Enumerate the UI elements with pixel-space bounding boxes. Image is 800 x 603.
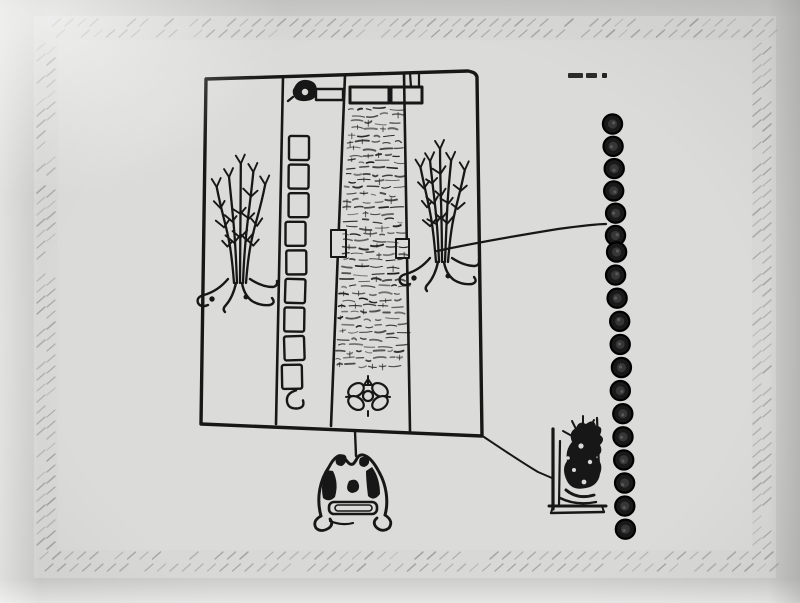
photograph-of-codex-plate <box>0 0 800 603</box>
hill-glyph-stem <box>355 431 356 456</box>
codex-plate-drawing <box>0 0 800 603</box>
